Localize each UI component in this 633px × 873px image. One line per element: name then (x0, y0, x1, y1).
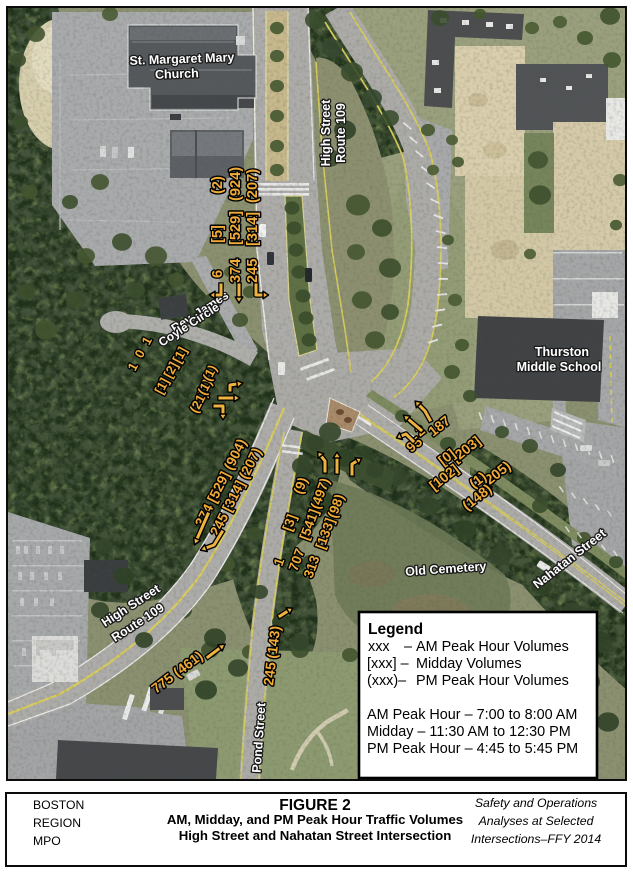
svg-text:AM Peak Hour – 7:00 to 8:00 AM: AM Peak Hour – 7:00 to 8:00 AM (367, 707, 577, 723)
svg-text:(924): (924) (228, 167, 244, 201)
svg-text:PM Peak Hour – 4:45 to 5:45 PM: PM Peak Hour – 4:45 to 5:45 PM (367, 741, 578, 757)
svg-text:[5]: [5] (210, 225, 226, 243)
svg-text:[529]: [529] (228, 211, 244, 245)
svg-text:xxx: xxx (368, 639, 390, 655)
svg-text:Thurston: Thurston (535, 345, 589, 359)
svg-text:[314]: [314] (245, 212, 261, 246)
svg-text:High Street: High Street (319, 99, 333, 167)
svg-text:[xxx] –: [xxx] – (367, 656, 409, 672)
svg-text:Route 109: Route 109 (334, 103, 348, 163)
svg-text:6: 6 (210, 270, 226, 278)
svg-text:245: 245 (245, 259, 261, 283)
svg-text:AM Peak Hour Volumes: AM Peak Hour Volumes (416, 639, 569, 655)
svg-text:PM Peak Hour Volumes: PM Peak Hour Volumes (416, 673, 569, 689)
svg-text:(xxx)–: (xxx)– (367, 673, 406, 689)
svg-text:(2): (2) (210, 176, 226, 194)
svg-text:(207): (207) (245, 169, 261, 203)
svg-text:Midday Volumes: Midday Volumes (416, 656, 522, 672)
svg-text:Midday – 11:30 AM to 12:30 PM: Midday – 11:30 AM to 12:30 PM (367, 724, 571, 740)
svg-text:374: 374 (228, 258, 244, 283)
svg-text:Church: Church (155, 66, 199, 82)
svg-text:Middle School: Middle School (517, 360, 602, 374)
svg-text:Legend: Legend (368, 621, 423, 638)
svg-text:–: – (404, 639, 412, 655)
